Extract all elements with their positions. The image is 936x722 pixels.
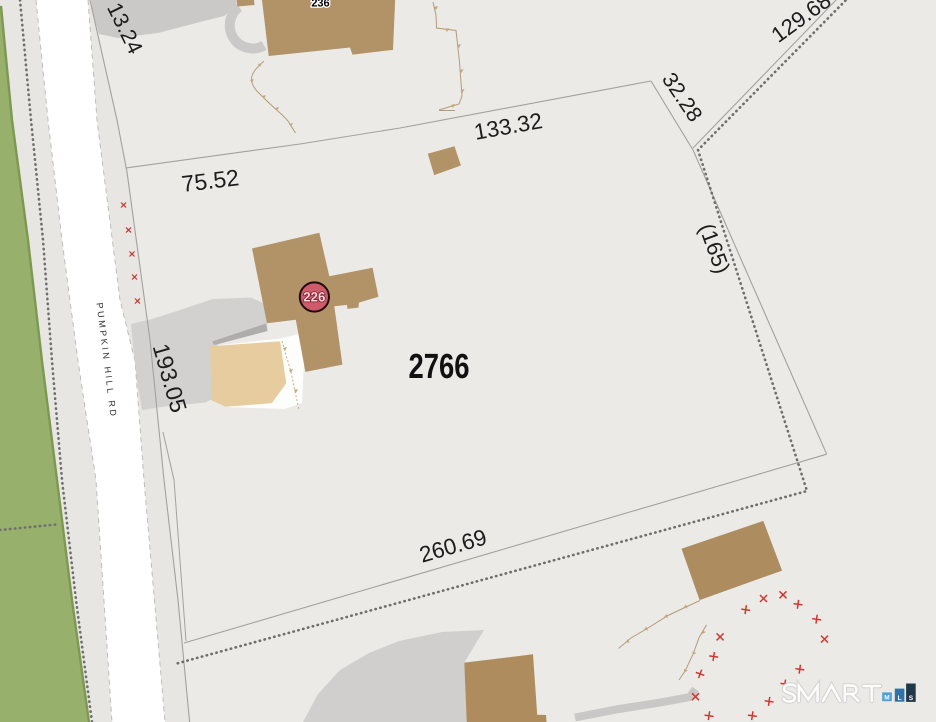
svg-text:226: 226 <box>303 290 325 305</box>
svg-text:236: 236 <box>311 0 329 9</box>
svg-text:M: M <box>884 695 889 702</box>
svg-text:S: S <box>909 695 914 702</box>
svg-text:L: L <box>898 695 902 702</box>
svg-text:2766: 2766 <box>409 347 470 386</box>
